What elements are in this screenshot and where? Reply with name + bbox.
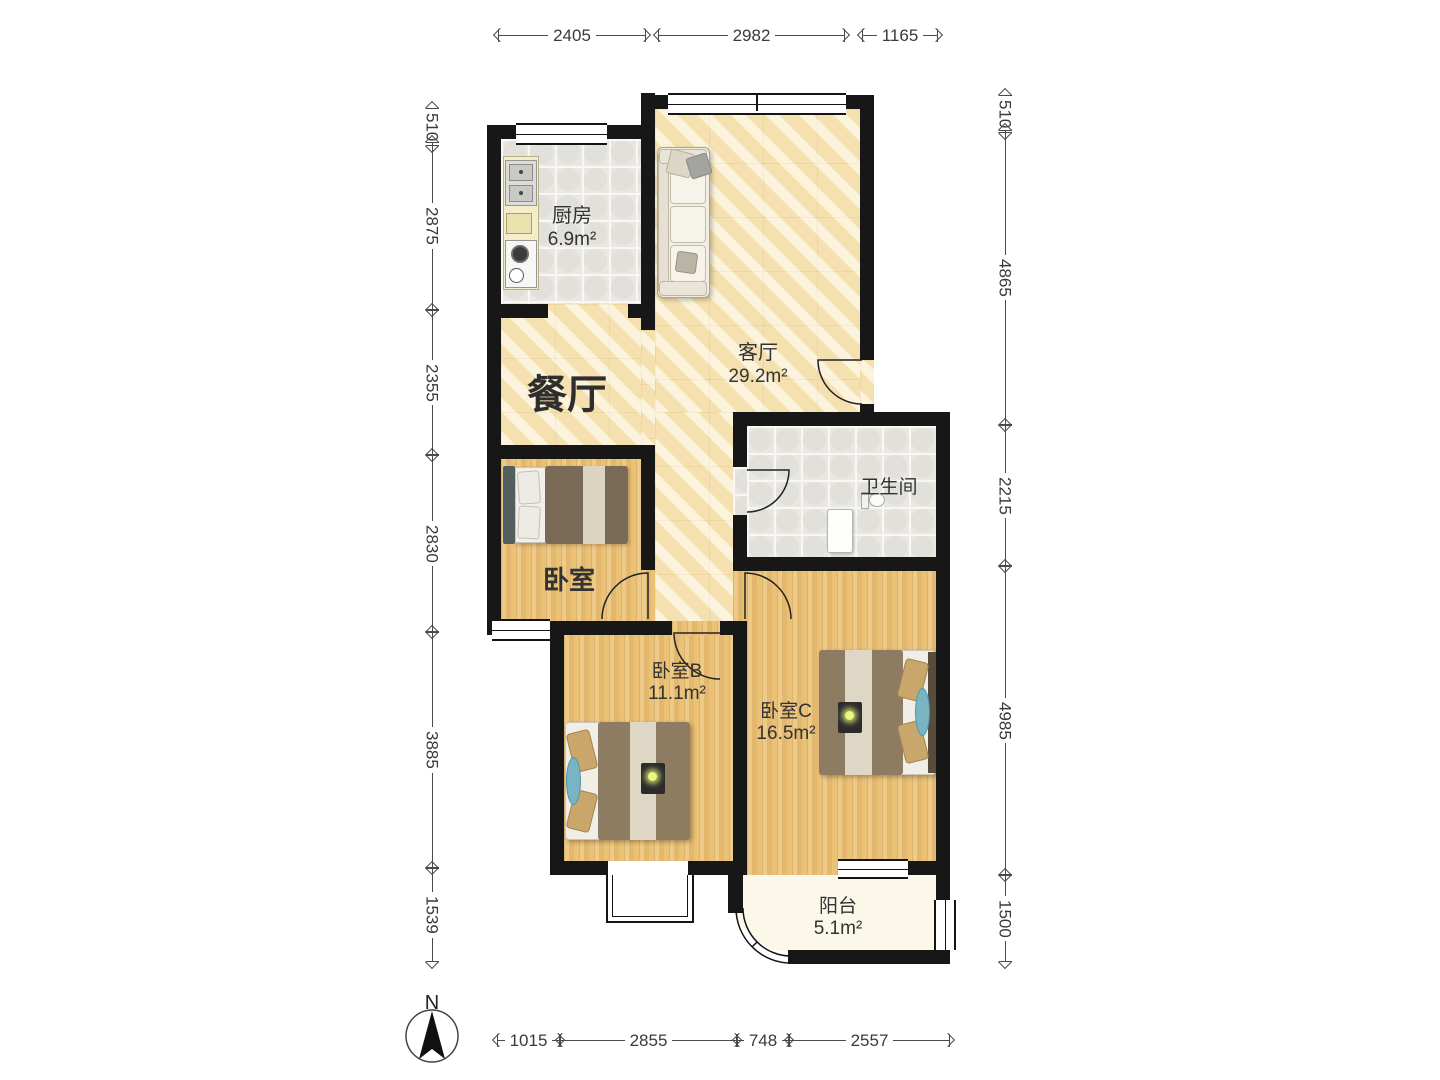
dim-right-4985: 4985 — [994, 566, 1016, 875]
bedroom-a-duvet-stripe — [583, 466, 605, 544]
dim-bottom-1015: 1015 — [497, 1029, 560, 1051]
bedroom-b-lamp — [648, 772, 657, 781]
wall — [728, 875, 743, 913]
wall — [487, 125, 501, 635]
wall — [908, 861, 950, 875]
dining-living-connector-floor — [641, 330, 655, 445]
bathroom-label: 卫生间 — [860, 477, 917, 499]
dim-left-2355: 2355 — [421, 310, 443, 455]
bedroom-a-window — [492, 619, 550, 641]
compass-needle — [419, 1011, 445, 1059]
dim-right-2215: 2215 — [994, 425, 1016, 566]
wall — [733, 412, 747, 467]
sink-drain-dot — [519, 170, 523, 174]
dim-right-4865: 4865 — [994, 130, 1016, 425]
wall — [688, 861, 747, 875]
wall — [641, 445, 655, 570]
kitchen-area: 6.9m² — [548, 229, 597, 250]
sink-drain-dot — [519, 191, 523, 195]
dim-left-1539: 1539 — [421, 868, 443, 962]
dim-left-3885: 3885 — [421, 632, 443, 868]
bathroom-door-threshold — [733, 467, 747, 515]
dim-left-2830: 2830 — [421, 455, 443, 632]
wall — [936, 557, 950, 875]
bedroom-a-pillow — [517, 505, 541, 539]
sofa-cushion — [670, 206, 706, 243]
dim-left-2875: 2875 — [421, 142, 443, 310]
bedroom-b-bay-window — [606, 875, 694, 923]
bedroom-c-lamp — [845, 711, 854, 720]
washing-machine — [827, 509, 853, 553]
living-area: 29.2m² — [728, 366, 787, 387]
kitchen-small-appliance — [506, 213, 532, 234]
dim-top-1165: 1165 — [862, 24, 938, 46]
living-label: 客厅 29.2m² — [728, 342, 787, 388]
bathroom-name: 卫生间 — [860, 477, 917, 498]
wall — [733, 621, 747, 861]
bedroom-c-round-pillow — [915, 688, 930, 736]
balcony-side-window — [934, 900, 956, 950]
kitchen-label: 厨房 6.9m² — [548, 205, 597, 251]
kitchen-name: 厨房 — [552, 205, 592, 227]
bedroom-c-name: 卧室C — [760, 701, 812, 722]
wall — [936, 412, 950, 571]
living-room-window-mullion — [756, 93, 758, 111]
dim-top-2982: 2982 — [658, 24, 845, 46]
bedroom-c-balcony-window — [838, 859, 908, 879]
bedroom-a-pillow — [517, 470, 541, 504]
wall — [550, 621, 564, 875]
wall — [936, 875, 950, 902]
wall — [550, 861, 608, 875]
sofa-pillow — [675, 251, 699, 275]
wall — [788, 950, 950, 964]
balcony-label: 阳台 5.1m² — [814, 896, 863, 940]
wall — [733, 515, 747, 571]
stove-burner — [511, 245, 529, 263]
wall — [860, 95, 874, 360]
dim-top-2405: 2405 — [498, 24, 646, 46]
bedroom-a-bed-headboard — [503, 466, 515, 544]
balcony-name: 阳台 — [819, 896, 857, 917]
wall — [733, 557, 950, 571]
floor-plan-canvas: N 厨房 6.9m² 餐厅 客厅 29.2m² 卫生间 卧室 卧室B 11.1m… — [0, 0, 1440, 1080]
dim-bottom-2557: 2557 — [789, 1029, 950, 1051]
dim-bottom-748: 748 — [737, 1029, 789, 1051]
hallway-floor — [655, 412, 733, 621]
dim-bottom-2855: 2855 — [560, 1029, 737, 1051]
dim-right-1500: 1500 — [994, 875, 1016, 962]
wall — [487, 304, 548, 318]
dining-name: 餐厅 — [527, 373, 607, 417]
bedroom-a-name: 卧室 — [543, 565, 595, 595]
compass-circle — [406, 1010, 458, 1062]
compass — [406, 1010, 458, 1062]
bedroom-c-area: 16.5m² — [756, 723, 815, 744]
kitchen-window — [516, 123, 607, 145]
wall — [641, 93, 655, 330]
bedroom-b-label: 卧室B 11.1m² — [648, 661, 706, 705]
bedroom-c-door-threshold — [733, 571, 747, 621]
bedroom-b-door-threshold — [672, 621, 720, 635]
sofa-armrest-bottom — [659, 281, 707, 296]
living-name: 客厅 — [738, 342, 778, 364]
wall — [628, 304, 641, 318]
bedroom-b-area: 11.1m² — [648, 683, 706, 704]
bay-window-inner-frame — [612, 875, 688, 917]
balcony-area: 5.1m² — [814, 918, 863, 939]
bedroom-b-name: 卧室B — [652, 661, 703, 682]
bedroom-b-round-pillow — [566, 757, 581, 805]
wall — [733, 412, 950, 426]
entry-threshold-floor — [860, 360, 874, 404]
dining-label: 餐厅 — [527, 372, 607, 418]
bedroom-a-label: 卧室 — [543, 566, 595, 596]
bedroom-c-label: 卧室C 16.5m² — [756, 701, 815, 745]
stove-dial — [509, 268, 524, 283]
bedroom-a-door-threshold — [641, 570, 655, 621]
compass-north-label: N — [425, 992, 439, 1015]
wall — [487, 445, 655, 459]
